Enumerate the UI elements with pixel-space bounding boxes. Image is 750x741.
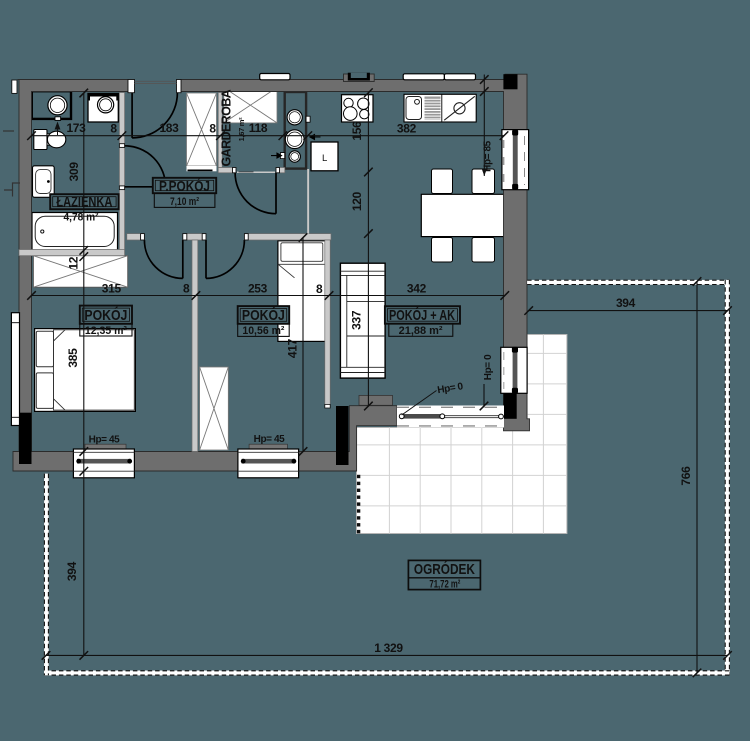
svg-text:12,35 m²: 12,35 m² (85, 325, 127, 337)
svg-text:ŁAZIENKA: ŁAZIENKA (56, 193, 112, 210)
svg-text:4,78 m²: 4,78 m² (64, 212, 99, 224)
svg-text:POKÓJ + AK: POKÓJ + AK (389, 306, 455, 324)
svg-text:394: 394 (616, 296, 636, 310)
svg-text:8: 8 (209, 122, 216, 136)
svg-text:71,72 m²: 71,72 m² (429, 579, 460, 591)
svg-text:OGRÓDEK: OGRÓDEK (414, 560, 475, 578)
svg-text:120: 120 (350, 191, 364, 211)
svg-text:7,10 m²: 7,10 m² (170, 196, 199, 208)
svg-text:8: 8 (316, 282, 323, 296)
svg-text:417: 417 (286, 338, 300, 358)
svg-text:Hp= 45: Hp= 45 (254, 434, 286, 445)
svg-text:1 329: 1 329 (374, 641, 403, 655)
svg-text:21,88 m²: 21,88 m² (399, 325, 443, 337)
svg-text:337: 337 (349, 310, 363, 330)
svg-text:118: 118 (249, 121, 268, 135)
svg-text:394: 394 (65, 561, 79, 581)
svg-text:POKÓJ: POKÓJ (84, 306, 127, 324)
svg-text:173: 173 (66, 121, 86, 135)
svg-text:12: 12 (67, 256, 81, 269)
svg-text:309: 309 (67, 162, 81, 182)
svg-text:1,67 m²: 1,67 m² (237, 117, 246, 142)
svg-text:156: 156 (350, 121, 364, 141)
svg-text:Hp= 85: Hp= 85 (482, 140, 493, 172)
svg-text:P.POKÓJ: P.POKÓJ (159, 177, 210, 195)
svg-text:382: 382 (397, 122, 417, 136)
svg-text:Hp= 45: Hp= 45 (89, 435, 121, 446)
svg-text:8: 8 (110, 122, 117, 136)
svg-text:253: 253 (248, 281, 268, 295)
svg-text:385: 385 (66, 348, 80, 368)
svg-text:183: 183 (159, 121, 179, 135)
svg-text:L: L (322, 153, 327, 164)
svg-text:8: 8 (183, 281, 190, 295)
svg-text:Hp= 0: Hp= 0 (483, 354, 494, 380)
svg-text:342: 342 (407, 281, 427, 295)
svg-text:GARDEROBA: GARDEROBA (220, 89, 234, 166)
svg-text:766: 766 (679, 466, 693, 486)
svg-text:POKÓJ: POKÓJ (242, 306, 285, 324)
svg-text:315: 315 (102, 281, 122, 295)
svg-text:10,56 m²: 10,56 m² (242, 325, 284, 337)
